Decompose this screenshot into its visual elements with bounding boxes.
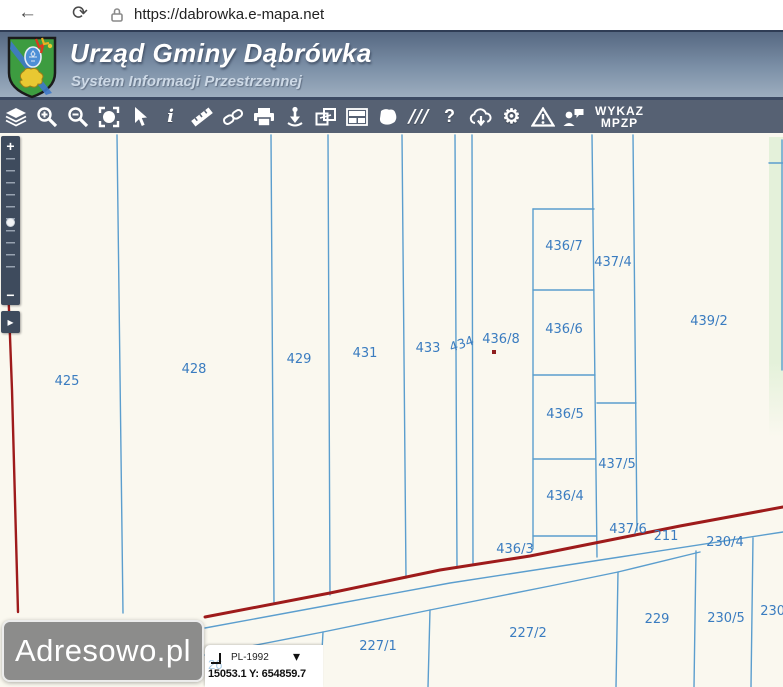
parcel-label-425: 425 (55, 374, 80, 389)
locate-icon[interactable] (279, 104, 310, 130)
parcel-label-229: 229 (645, 612, 670, 627)
wykaz-label-line2: MPZP (595, 117, 644, 129)
cadastral-map[interactable]: 425428429431433434436/8436/7437/4436/643… (0, 133, 783, 687)
parcel-label-436-4: 436/4 (546, 489, 583, 504)
parcel-label-433: 433 (416, 341, 441, 356)
zoom-slider[interactable]: + − (1, 136, 20, 305)
parcel-label-436-5: 436/5 (546, 407, 583, 422)
hatch-icon[interactable]: /// (403, 104, 434, 130)
green-area (769, 137, 783, 437)
parcel-label-436-7: 436/7 (545, 239, 582, 254)
parcel-label-436-3: 436/3 (496, 542, 533, 557)
parcel-label-428: 428 (182, 362, 207, 377)
layers-icon[interactable] (0, 104, 31, 130)
link-icon[interactable] (217, 104, 248, 130)
parcel-label-230-4: 230/4 (706, 535, 743, 550)
copy-view-icon[interactable] (310, 104, 341, 130)
measure-icon[interactable] (186, 104, 217, 130)
parcel-label-431: 431 (353, 346, 378, 361)
watermark-badge: Adresowo.pl (2, 620, 204, 682)
chevron-down-icon[interactable]: ▾ (293, 648, 300, 665)
url-field[interactable]: https://dabrowka.e-mapa.net (134, 6, 324, 23)
layout-icon[interactable] (341, 104, 372, 130)
full-extent-icon[interactable] (93, 104, 124, 130)
expand-panel-button[interactable]: ▸ (1, 311, 20, 333)
parcel-labels: 425428429431433434436/8436/7437/4436/643… (55, 239, 783, 654)
map-toolbar: i///?⚙ WYKAZ MPZP (0, 100, 783, 133)
draw-polygon-icon[interactable] (372, 104, 403, 130)
help-icon[interactable]: ? (434, 104, 465, 130)
print-icon[interactable] (248, 104, 279, 130)
parcel-label-227-2: 227/2 (509, 626, 546, 641)
cloud-download-icon[interactable] (465, 104, 496, 130)
wykaz-mpzp-button[interactable]: WYKAZ MPZP (595, 105, 644, 129)
cursor-coordinates: 15053.1 Y: 654859.7 (208, 668, 306, 680)
info-icon[interactable]: i (155, 104, 186, 130)
browser-bar: ← ⟳ https://dabrowka.e-mapa.net (0, 0, 783, 30)
coat-of-arms (6, 35, 58, 104)
parcel-label-436-8: 436/8 (482, 332, 519, 347)
back-icon[interactable]: ← (18, 2, 37, 24)
scale-corner-icon (211, 653, 221, 664)
page-subtitle: System Informacji Przestrzennej (71, 73, 302, 90)
parcel-label-230-5: 230/5 (707, 611, 744, 626)
lock-icon (110, 7, 124, 28)
watermark-text: Adresowo.pl (15, 633, 191, 669)
parcel-label-436-6: 436/6 (545, 322, 582, 337)
zoom-in-icon[interactable] (31, 104, 62, 130)
app-window: ← ⟳ https://dabrowka.e-mapa.net Urząd Gm (0, 0, 783, 687)
cursor-icon[interactable] (124, 104, 155, 130)
reload-icon[interactable]: ⟳ (72, 2, 88, 25)
parcel-boundaries (117, 135, 783, 687)
parcel-label-211: 211 (654, 529, 679, 544)
settings-icon[interactable]: ⚙ (496, 104, 527, 130)
wykaz-label-line1: WYKAZ (595, 105, 644, 117)
page-title: Urząd Gminy Dąbrówka (70, 38, 372, 69)
crs-selector[interactable]: PL-1992 (231, 652, 269, 663)
parcel-label-437-4: 437/4 (594, 255, 631, 270)
coordinates-panel: 26 PL-1992 ▾ 15053.1 Y: 654859.7 (205, 645, 323, 687)
site-header: Urząd Gminy Dąbrówka System Informacji P… (0, 30, 783, 100)
selected-point-marker (492, 350, 496, 354)
parcel-label-437-6: 437/6 (609, 522, 646, 537)
zoom-out-icon[interactable] (62, 104, 93, 130)
contact-icon[interactable] (558, 104, 589, 130)
map-viewport[interactable]: 425428429431433434436/8436/7437/4436/643… (0, 133, 783, 687)
parcel-label-429: 429 (287, 352, 312, 367)
parcel-label-434: 434 (448, 334, 476, 356)
parcel-label-230-3: 230/3 (760, 604, 783, 619)
parcel-label-227-1: 227/1 (359, 639, 396, 654)
parcel-label-439-2: 439/2 (690, 314, 727, 329)
zoom-in-slider-button[interactable]: + (1, 139, 20, 153)
zoom-out-slider-button[interactable]: − (1, 288, 20, 302)
parcel-label-437-5: 437/5 (598, 457, 635, 472)
zoom-slider-handle[interactable] (6, 218, 15, 227)
warning-icon[interactable] (527, 104, 558, 130)
